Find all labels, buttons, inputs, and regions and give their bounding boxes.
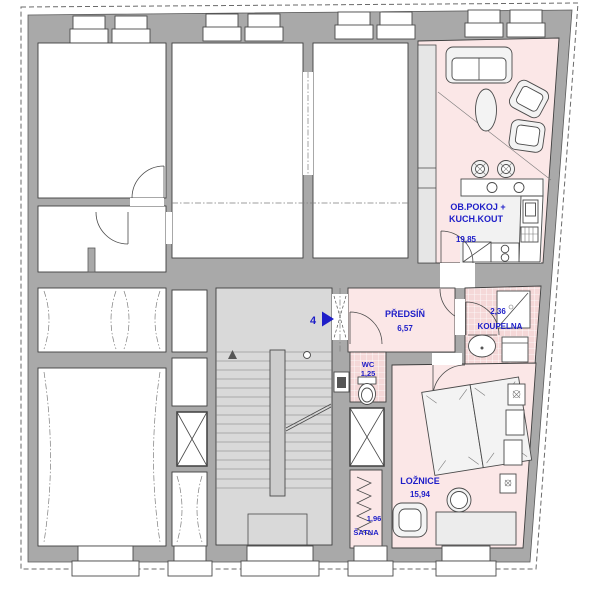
- hall-area: 6,57: [397, 324, 413, 333]
- room-top-center: [313, 43, 408, 258]
- wc-hand-basin: [334, 372, 349, 392]
- bedroom-label: LOŽNICE: [400, 475, 440, 486]
- wall-cabinet: [418, 45, 436, 263]
- bedroom-room: [392, 353, 536, 548]
- room-bottom-left: [38, 368, 166, 546]
- wc-label: WC: [362, 360, 375, 369]
- armchair: [393, 503, 427, 537]
- bedroom-area: 15,94: [410, 490, 431, 499]
- shaft-column: [172, 290, 207, 546]
- nightstand: [504, 440, 522, 465]
- stair-spine: [270, 350, 285, 496]
- closet-area: 1,96: [367, 514, 382, 523]
- bar-stool: [472, 161, 489, 178]
- nightstand: [506, 410, 524, 435]
- unit-number: 4: [310, 315, 317, 327]
- bathroom-label: KOUPELNA: [478, 322, 523, 331]
- hall-room: [332, 288, 472, 352]
- armchair: [508, 119, 546, 153]
- washing-machine: [502, 337, 528, 362]
- coffee-table: [476, 89, 497, 131]
- desk: [436, 512, 516, 545]
- living-kitchen-label-2: KUCH.KOUT: [449, 214, 503, 224]
- living-kitchen-room: [418, 38, 559, 288]
- bathroom-area: 2,36: [490, 307, 506, 316]
- wc-area: 1,25: [361, 369, 376, 378]
- bedside-lamp-table: [500, 474, 516, 493]
- sofa: [446, 47, 512, 83]
- newel-post: [304, 352, 311, 359]
- desk-chair: [447, 488, 471, 512]
- hall-label: PŘEDSÍŇ: [385, 308, 425, 319]
- toilet: [358, 377, 376, 405]
- closet-label: ŠATNA: [353, 528, 379, 537]
- shaft-x-right: [350, 408, 384, 466]
- living-kitchen-area: 19,85: [456, 235, 477, 244]
- nightstand: [508, 384, 525, 405]
- floor-plan-canvas: 4: [0, 0, 600, 595]
- vaulted-room-left: [38, 288, 166, 352]
- room-top-left: [38, 43, 166, 198]
- corridor-left: [38, 206, 166, 272]
- living-kitchen-label: OB.POKOJ +: [450, 202, 505, 212]
- bar-stool: [498, 161, 515, 178]
- floor-plan: 4: [0, 0, 600, 595]
- room-top-middle: [172, 43, 303, 258]
- shaft-x-left: [177, 412, 207, 466]
